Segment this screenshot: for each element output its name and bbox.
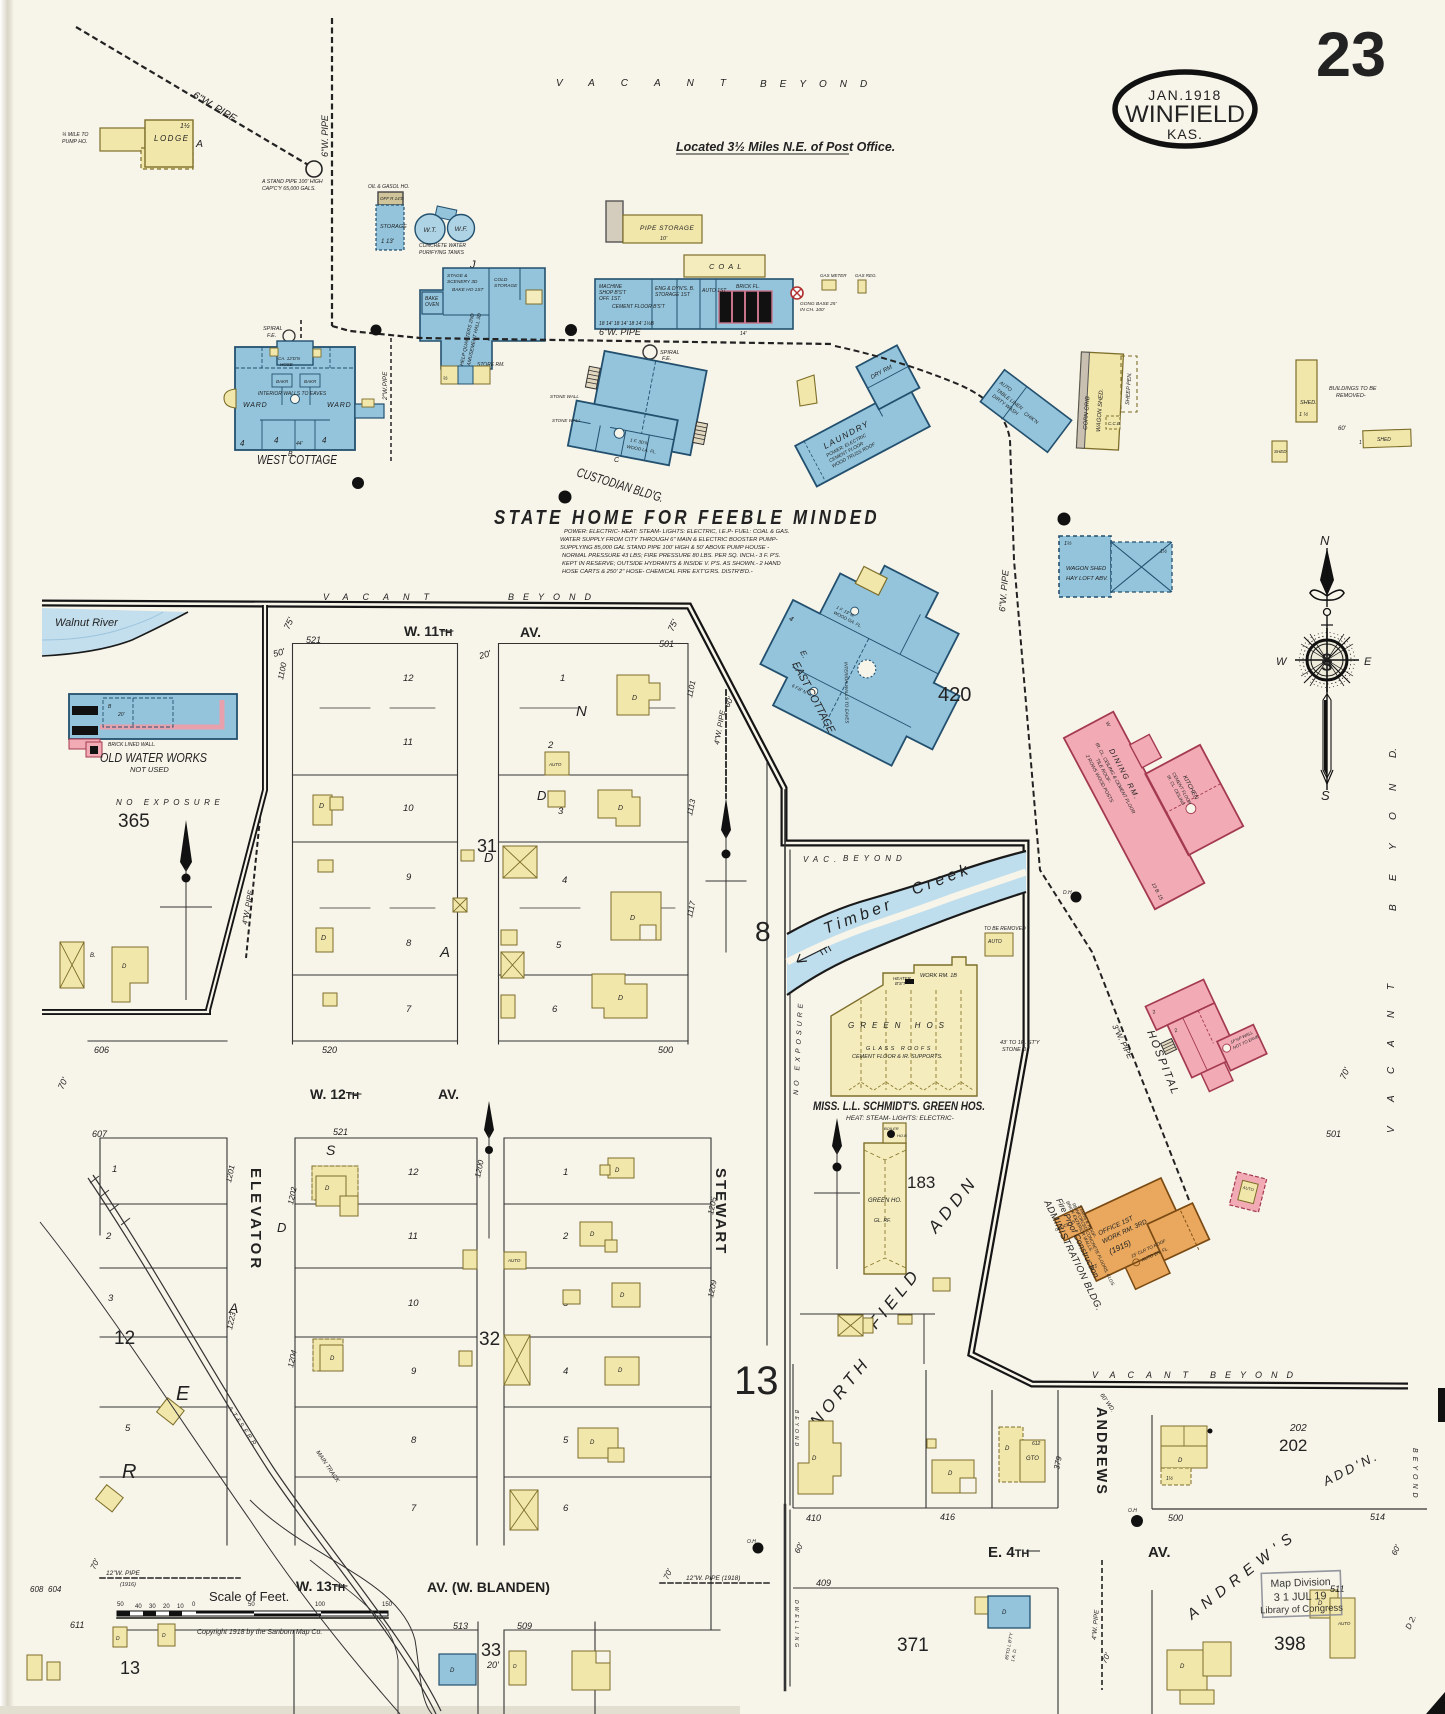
svg-text:10: 10	[408, 1298, 419, 1309]
svg-text:D: D	[1178, 1458, 1183, 1464]
svg-text:44': 44'	[296, 441, 304, 447]
svg-text:183: 183	[907, 1173, 935, 1192]
svg-text:AV.: AV.	[520, 624, 541, 640]
svg-text:R: R	[122, 1461, 136, 1483]
svg-text:606: 606	[94, 1045, 109, 1055]
svg-text:409: 409	[816, 1578, 831, 1588]
svg-text:½: ½	[443, 375, 448, 382]
svg-text:D: D	[620, 1293, 625, 1299]
svg-text:KAS.: KAS.	[1167, 126, 1203, 142]
svg-text:HEAT: STEAM- LIGHTS: ELEC: HEAT: STEAM- LIGHTS: ELECTRIC-	[846, 1115, 955, 1122]
svg-text:23: 23	[1316, 20, 1386, 90]
svg-text:7: 7	[406, 1004, 412, 1015]
svg-text:§: §	[1321, 650, 1333, 673]
svg-text:W: W	[1276, 656, 1288, 668]
svg-text:1½: 1½	[180, 122, 190, 130]
svg-text:5: 5	[125, 1423, 131, 1434]
svg-text:416: 416	[940, 1512, 955, 1522]
svg-text:CEMENT FLOOR & IR. SUPPORT: CEMENT FLOOR & IR. SUPPORTS.	[852, 1054, 943, 1060]
svg-text:SUPPLYING 85,000 GAL STAND PIP: SUPPLYING 85,000 GAL STAND PIPE 100' HIG…	[560, 545, 769, 551]
svg-text:13: 13	[734, 1359, 779, 1403]
svg-text:HAY LOFT ABV.: HAY LOFT ABV.	[1066, 576, 1108, 582]
svg-text:HO.B: HO.B	[897, 1133, 907, 1138]
svg-text:43' TO 1R. ST'Y: 43' TO 1R. ST'Y	[1000, 1040, 1040, 1046]
svg-text:6: 6	[552, 1004, 558, 1015]
svg-text:1: 1	[112, 1164, 117, 1175]
svg-text:OLD WATER WORKS: OLD WATER WORKS	[100, 751, 208, 765]
svg-text:D: D	[590, 1232, 595, 1238]
svg-text:B: B	[1388, 904, 1399, 911]
svg-text:AUTO: AUTO	[548, 762, 562, 767]
svg-text:SCENERY 3D: SCENERY 3D	[447, 279, 478, 285]
svg-text:AUTO: AUTO	[507, 1258, 521, 1263]
svg-text:12: 12	[408, 1167, 419, 1178]
svg-text:D: D	[513, 1664, 517, 1670]
svg-text:N: N	[1320, 533, 1330, 548]
svg-text:CAP'C'Y 65,000 GALS.: CAP'C'Y 65,000 GALS.	[262, 186, 316, 192]
svg-text:30: 30	[149, 1604, 156, 1610]
svg-text:WINFIELD: WINFIELD	[1125, 101, 1245, 128]
svg-text:14': 14'	[740, 331, 748, 337]
svg-text:INTERIOR WALLS TO EAVES: INTERIOR WALLS TO EAVES	[258, 391, 327, 397]
svg-text:¼ MILE TO: ¼ MILE TO	[62, 132, 88, 138]
svg-text:D: D	[321, 935, 326, 942]
svg-text:D: D	[630, 915, 635, 922]
svg-text:D: D	[122, 964, 127, 970]
svg-text:D: D	[1005, 1446, 1010, 1452]
svg-text:520: 520	[322, 1045, 337, 1055]
svg-text:D: D	[618, 805, 623, 812]
svg-text:4: 4	[322, 436, 327, 445]
svg-text:E: E	[176, 1383, 190, 1405]
svg-text:BUILDINGS TO BE: BUILDINGS TO BE	[1329, 386, 1377, 392]
svg-text:STATE HOME FOR FEEBLE MIND: STATE HOME FOR FEEBLE MINDED	[494, 507, 880, 529]
svg-text:50: 50	[117, 1602, 124, 1608]
svg-text:D: D	[615, 1168, 620, 1174]
svg-text:1 ½: 1 ½	[1299, 411, 1309, 418]
svg-text:VACANT: VACANT	[1092, 1370, 1200, 1380]
svg-text:D: D	[948, 1471, 953, 1477]
svg-text:1½: 1½	[1166, 1475, 1174, 1482]
svg-text:BAKE HO 1ST: BAKE HO 1ST	[452, 287, 485, 293]
svg-text:18 14' 18 14' 18 1: 18 14' 18 14' 18 14' 1½B	[599, 320, 655, 327]
svg-text:C: C	[1386, 1066, 1397, 1074]
svg-text:OFF. 1ST.: OFF. 1ST.	[599, 296, 621, 302]
svg-text:371: 371	[897, 1635, 929, 1656]
svg-text:500: 500	[1168, 1513, 1183, 1523]
svg-text:CA. 12'D'N: CA. 12'D'N	[278, 356, 301, 361]
svg-text:3: 3	[108, 1293, 114, 1304]
svg-text:F.E.: F.E.	[267, 333, 276, 339]
svg-text:BEYOND: BEYOND	[1210, 1370, 1302, 1380]
svg-text:GREEN HO.: GREEN HO.	[868, 1198, 902, 1204]
svg-text:OVEN: OVEN	[425, 302, 440, 308]
svg-text:BEYOND: BEYOND	[793, 1410, 799, 1449]
svg-text:BAKR: BAKR	[276, 379, 289, 384]
svg-text:1 13': 1 13'	[381, 239, 395, 245]
svg-text:T: T	[1386, 983, 1397, 990]
svg-text:Map Division: Map Division	[1270, 1576, 1331, 1590]
svg-text:8: 8	[755, 916, 771, 947]
svg-text:WORK RM. 1B: WORK RM. 1B	[920, 973, 957, 979]
svg-text:STEWART: STEWART	[712, 1168, 729, 1255]
svg-text:D: D	[277, 1220, 286, 1235]
svg-text:3: 3	[558, 806, 564, 817]
svg-text:11: 11	[408, 1231, 418, 1242]
svg-text:HOSE CARTS & 250' 2" HOSE-: HOSE CARTS & 250' 2" HOSE- CHEMICAL FIRE…	[562, 569, 753, 575]
svg-text:PIPE STORAGE: PIPE STORAGE	[640, 225, 694, 232]
svg-text:513: 513	[453, 1621, 468, 1631]
svg-text:202: 202	[1279, 1436, 1307, 1455]
svg-text:20: 20	[163, 1604, 170, 1610]
svg-text:D.H: D.H	[1063, 890, 1072, 896]
svg-text:A: A	[439, 944, 450, 961]
svg-text:TO BE REMOVED: TO BE REMOVED	[984, 926, 1026, 932]
svg-text:1: 1	[560, 673, 565, 684]
svg-text:COLD: COLD	[494, 277, 508, 283]
svg-text:4: 4	[563, 1366, 568, 1377]
svg-text:365: 365	[118, 811, 150, 832]
svg-text:AV.: AV.	[438, 1086, 459, 1102]
svg-text:STONE WALL: STONE WALL	[550, 394, 579, 399]
svg-text:N: N	[1386, 1010, 1397, 1018]
svg-text:2: 2	[105, 1231, 112, 1242]
svg-text:OIL & GASOL HO.: OIL & GASOL HO.	[368, 184, 410, 190]
svg-text:31: 31	[477, 836, 497, 856]
svg-text:MISS. L.L. SCHMIDT'S. GREEN HO: MISS. L.L. SCHMIDT'S. GREEN HOS.	[813, 1101, 985, 1113]
svg-text:BEYOND: BEYOND	[1411, 1448, 1418, 1502]
svg-text:W.T.: W.T.	[424, 227, 437, 234]
svg-text:B.: B.	[90, 953, 96, 959]
svg-text:A: A	[1386, 1040, 1397, 1048]
svg-text:AV.: AV.	[1148, 1544, 1171, 1561]
svg-text:2: 2	[547, 740, 554, 751]
svg-text:D: D	[319, 803, 324, 810]
svg-text:1: 1	[563, 1167, 568, 1178]
svg-text:10': 10'	[660, 236, 668, 242]
svg-text:ANDREWS: ANDREWS	[1093, 1407, 1109, 1496]
svg-text:GL. RF.: GL. RF.	[874, 1218, 891, 1224]
svg-text:PUMP HO.: PUMP HO.	[62, 139, 87, 145]
svg-text:GAS REG.: GAS REG.	[855, 273, 877, 278]
svg-text:NO EXPOSURE: NO EXPOSURE	[116, 798, 224, 807]
svg-text:O.H: O.H	[747, 1539, 756, 1545]
svg-text:3 1 JUL 19: 3 1 JUL 19	[1274, 1590, 1327, 1604]
svg-text:WEST COTTAGE: WEST COTTAGE	[257, 453, 338, 467]
svg-text:D: D	[632, 695, 637, 702]
svg-text:D: D	[116, 1636, 120, 1642]
svg-text:AV. (W. BLANDEN): AV. (W. BLANDEN)	[427, 1579, 550, 1595]
svg-text:SHED: SHED	[1377, 437, 1391, 443]
svg-text:D: D	[162, 1633, 166, 1639]
svg-text:20': 20'	[117, 712, 126, 718]
svg-text:4: 4	[562, 875, 567, 886]
svg-text:40: 40	[135, 1604, 142, 1610]
svg-text:D: D	[812, 1456, 817, 1462]
svg-text:LODGE: LODGE	[154, 134, 190, 143]
svg-text:150: 150	[382, 1602, 393, 1608]
svg-text:410: 410	[806, 1513, 821, 1523]
svg-text:6: 6	[563, 1503, 569, 1514]
svg-text:GREEN HOS: GREEN HOS	[848, 1021, 950, 1030]
svg-text:A: A	[195, 138, 203, 150]
svg-text:612: 612	[1032, 1441, 1041, 1447]
svg-text:BRICK LINED WALL.: BRICK LINED WALL.	[108, 742, 156, 748]
svg-text:SHED: SHED	[1274, 449, 1287, 454]
svg-text:GTO: GTO	[1026, 1456, 1039, 1462]
svg-text:1: 1	[1359, 440, 1362, 446]
svg-text:10: 10	[403, 803, 414, 814]
svg-text:7: 7	[411, 1503, 417, 1514]
svg-text:A STAND PIPE 100' HIGH: A STAND PIPE 100' HIGH	[261, 179, 323, 185]
svg-text:501: 501	[1326, 1129, 1341, 1139]
svg-text:STORAGE 1ST: STORAGE 1ST	[655, 292, 691, 298]
svg-text:F.E.: F.E.	[662, 356, 671, 362]
svg-text:WARD: WARD	[243, 402, 267, 409]
svg-text:BEYOND: BEYOND	[843, 854, 907, 863]
svg-text:VACANT: VACANT	[556, 78, 752, 89]
svg-text:500: 500	[658, 1045, 673, 1055]
svg-text:1½: 1½	[1160, 548, 1168, 555]
svg-text:STAGE &: STAGE &	[447, 273, 467, 279]
svg-text:4: 4	[240, 439, 245, 448]
svg-text:W.F.: W.F.	[455, 226, 468, 233]
svg-text:(1916): (1916)	[120, 1582, 136, 1588]
svg-text:D: D	[450, 1668, 455, 1674]
svg-text:6"W. PIPE: 6"W. PIPE	[320, 114, 330, 157]
svg-text:AUTO 1ST: AUTO 1ST	[701, 288, 727, 294]
svg-text:AUTO: AUTO	[1337, 1621, 1351, 1626]
svg-text:D: D	[325, 1186, 330, 1192]
svg-text:AUTO: AUTO	[987, 939, 1002, 945]
svg-text:D: D	[618, 995, 623, 1002]
svg-text:11: 11	[403, 737, 413, 748]
svg-text:GLASS ROOFS: GLASS ROOFS	[866, 1046, 933, 1052]
svg-text:GAS METER: GAS METER	[820, 273, 847, 278]
svg-text:D: D	[1180, 1664, 1185, 1670]
svg-text:Located 3½ Miles N.E. of Post: Located 3½ Miles N.E. of Post Office.	[676, 140, 895, 154]
svg-text:D: D	[537, 788, 546, 803]
svg-text:6"W. PIPE: 6"W. PIPE	[599, 327, 642, 337]
svg-text:D: D	[1002, 1610, 1007, 1616]
svg-text:100: 100	[315, 1602, 326, 1608]
svg-text:VACANT: VACANT	[323, 592, 443, 602]
svg-text:BOILER: BOILER	[884, 1126, 899, 1131]
svg-text:D: D	[618, 1368, 623, 1374]
svg-text:20': 20'	[486, 1660, 499, 1670]
svg-text:398: 398	[1274, 1634, 1306, 1655]
svg-text:A: A	[1386, 1095, 1397, 1103]
svg-text:SHED.: SHED.	[1300, 400, 1317, 406]
svg-text:O.H: O.H	[1128, 1508, 1137, 1514]
svg-text:32: 32	[479, 1329, 500, 1350]
svg-text:33: 33	[481, 1640, 501, 1660]
svg-text:5: 5	[563, 1435, 569, 1446]
svg-text:Walnut River: Walnut River	[55, 617, 119, 629]
svg-text:IN CH. 100': IN CH. 100'	[800, 307, 826, 313]
svg-text:13: 13	[120, 1658, 140, 1678]
svg-text:420: 420	[938, 684, 971, 706]
svg-text:N: N	[576, 703, 587, 720]
svg-text:STONE WALL: STONE WALL	[552, 418, 581, 423]
svg-text:BRICK FL.: BRICK FL.	[736, 284, 760, 290]
svg-text:HOSE: HOSE	[280, 362, 294, 367]
svg-text:STORAGE: STORAGE	[494, 283, 518, 289]
svg-text:B'S'T: B'S'T	[895, 981, 907, 986]
svg-text:WAGON SHED: WAGON SHED	[1066, 566, 1106, 572]
svg-text:4: 4	[274, 436, 279, 445]
svg-text:NOT USED: NOT USED	[130, 765, 169, 774]
svg-text:521: 521	[333, 1127, 348, 1137]
svg-text:2"W.PIPE: 2"W.PIPE	[382, 371, 389, 401]
svg-text:S: S	[326, 1142, 336, 1158]
svg-text:9: 9	[411, 1366, 417, 1377]
svg-text:PURIFYING TANKS: PURIFYING TANKS	[419, 250, 465, 256]
svg-text:N: N	[1388, 783, 1399, 791]
svg-text:KEPT IN RESERVE; OUTSIDE HYD: KEPT IN RESERVE; OUTSIDE HYDRANTS & INSI…	[562, 561, 781, 567]
svg-text:D: D	[330, 1356, 335, 1362]
svg-text:NORMAL PRESSURE 43 LBS; FIRE: NORMAL PRESSURE 43 LBS; FIRE PRESSURE 80…	[562, 553, 780, 559]
svg-text:GONG BASE 25': GONG BASE 25'	[800, 301, 837, 307]
svg-text:509: 509	[517, 1621, 532, 1631]
svg-text:E: E	[1364, 656, 1372, 668]
svg-text:2: 2	[562, 1231, 569, 1242]
svg-text:1½: 1½	[1064, 540, 1072, 547]
svg-text:WARD: WARD	[327, 402, 351, 409]
svg-text:12"W. PIPE (1918): 12"W. PIPE (1918)	[686, 1575, 740, 1582]
svg-text:9: 9	[406, 872, 412, 883]
svg-text:SPIRAL: SPIRAL	[263, 326, 283, 332]
svg-text:POWER: ELECTRIC- HEAT: STEAM-: POWER: ELECTRIC- HEAT: STEAM- LIGHTS: EL…	[564, 529, 789, 535]
svg-text:S: S	[1321, 788, 1330, 803]
svg-text:202: 202	[1289, 1423, 1307, 1434]
svg-text:12: 12	[114, 1328, 135, 1349]
svg-text:12"W. PIPE: 12"W. PIPE	[106, 1570, 141, 1577]
svg-text:611: 611	[70, 1620, 84, 1630]
svg-text:BEYOND: BEYOND	[760, 79, 880, 90]
svg-text:VAC.: VAC.	[803, 855, 841, 864]
svg-text:A: A	[228, 1300, 238, 1316]
svg-text:WATER SUPPLY FROM CITY THROUGH: WATER SUPPLY FROM CITY THROUGH 6" MAIN &…	[560, 537, 778, 543]
svg-text:608: 608	[30, 1585, 44, 1594]
svg-text:5: 5	[556, 940, 562, 951]
svg-text:ELEVATOR: ELEVATOR	[247, 1168, 264, 1271]
svg-text:E: E	[1388, 874, 1399, 881]
svg-text:604: 604	[48, 1585, 62, 1594]
svg-text:8: 8	[406, 938, 412, 949]
svg-text:OFF R 14'D: OFF R 14'D	[380, 196, 405, 201]
svg-text:D.: D.	[1388, 748, 1399, 758]
svg-text:C.C.B: C.C.B	[1108, 421, 1120, 426]
svg-text:REMOVED-: REMOVED-	[1336, 393, 1366, 399]
svg-text:COAL: COAL	[709, 262, 745, 271]
svg-text:BEYOND: BEYOND	[508, 592, 600, 602]
svg-text:STORAGE: STORAGE	[380, 224, 407, 230]
svg-text:STONE D.: STONE D.	[1002, 1047, 1028, 1053]
svg-text:511: 511	[1330, 1584, 1344, 1594]
svg-text:60': 60'	[1338, 426, 1347, 432]
svg-text:12: 12	[403, 673, 414, 684]
svg-text:CEMENT FLOOR B'S'T: CEMENT FLOOR B'S'T	[612, 304, 666, 310]
svg-text:O: O	[1388, 812, 1399, 820]
svg-text:CONCRETE WATER: CONCRETE WATER	[419, 243, 466, 249]
svg-text:D: D	[590, 1440, 595, 1446]
svg-text:514: 514	[1370, 1512, 1385, 1522]
svg-text:50: 50	[248, 1602, 255, 1608]
svg-text:DWELLING: DWELLING	[793, 1600, 799, 1650]
svg-text:BAKR: BAKR	[304, 379, 317, 384]
svg-text:10: 10	[177, 1604, 184, 1610]
svg-text:8: 8	[411, 1435, 417, 1446]
svg-text:INTERIOR WALLS TO EAVES: INTERIOR WALLS TO EAVES	[843, 662, 849, 723]
